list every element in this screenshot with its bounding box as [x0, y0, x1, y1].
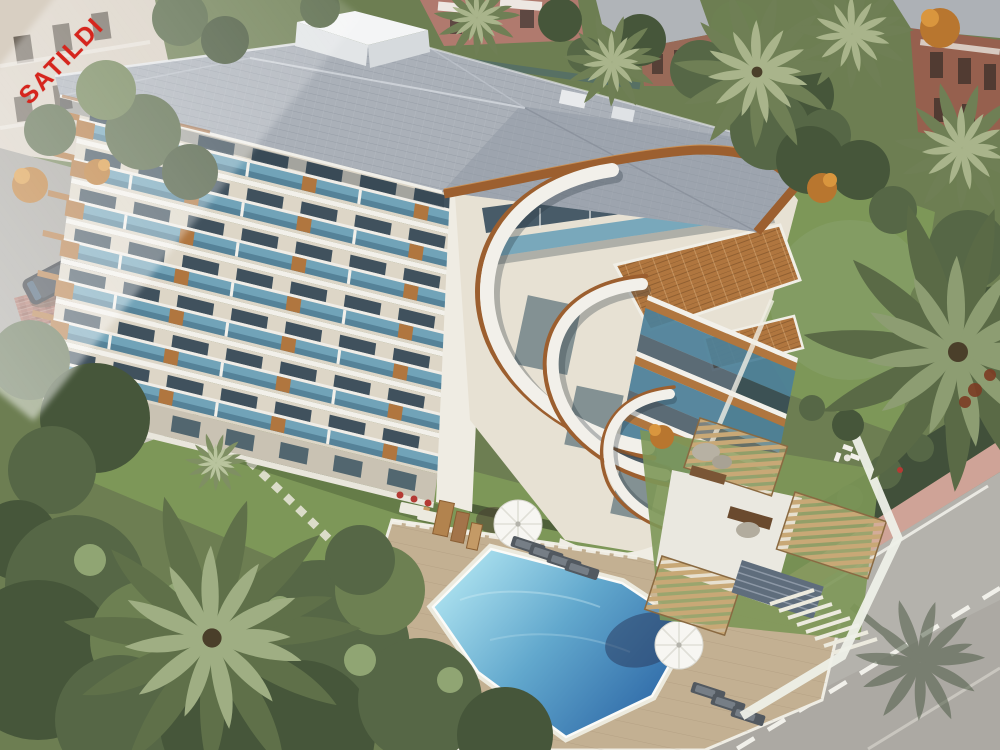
aerial-architectural-render: SATILDI [0, 0, 1000, 750]
pool-umbrella-2 [655, 621, 703, 669]
scene-canvas [0, 0, 1000, 750]
